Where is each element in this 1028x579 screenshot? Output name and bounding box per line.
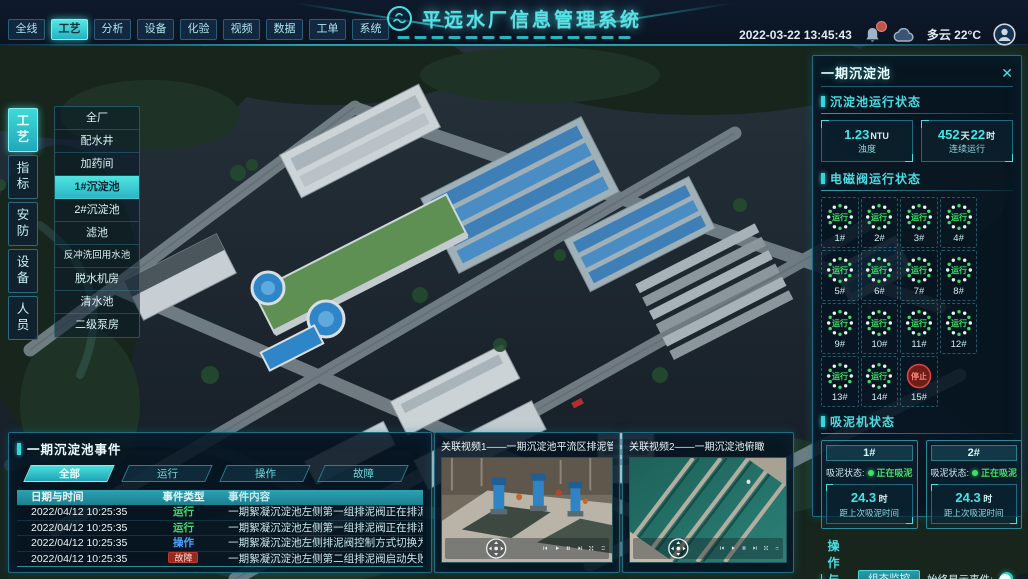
valve-cell-2#: 运行2# [861, 197, 899, 248]
svg-text:运行: 运行 [911, 318, 927, 328]
left-category-tab-1[interactable]: 指标 [8, 155, 38, 199]
valve-number-label: 5# [835, 286, 846, 297]
valve-cell-9#: 运行9# [821, 303, 859, 354]
events-table-header: 日期与时间 事件类型 事件内容 [17, 490, 423, 505]
events-panel-title: 一期沉淀池事件 [17, 439, 423, 458]
top-nav-tab-6[interactable]: 数据 [266, 19, 303, 40]
svg-text:运行: 运行 [871, 265, 887, 275]
video-panel-2: 关联视频2——一期沉淀池俯瞰 [622, 432, 794, 573]
stat-value-0: 1.23NTU [844, 128, 890, 141]
events-table: 日期与时间 事件类型 事件内容 2022/04/12 10:25:35运行一期絮… [17, 490, 423, 567]
ptz-dpad-icon[interactable] [637, 538, 720, 559]
top-nav-tabs: 全线工艺分析设备化验视频数据工单系统 [8, 19, 389, 40]
event-datetime: 2022/04/12 10:25:35 [17, 505, 139, 520]
svg-text:运行: 运行 [832, 265, 848, 275]
valve-running-gauge-icon: 运行 [825, 255, 855, 285]
svg-text:运行: 运行 [951, 318, 967, 328]
mud-machine-card-0: 1#吸泥状态:正在吸泥24.3 时距上次吸泥时间 [821, 440, 918, 529]
header-dash-strip [398, 36, 631, 39]
sedimentation-detail-panel: 一期沉淀池 ✕ 沉淀池运行状态 1.23NTU浊度452天22时连续运行 电磁阀… [812, 55, 1022, 517]
svg-text:运行: 运行 [951, 212, 967, 222]
toggle-knob [999, 574, 1011, 579]
valve-cell-6#: 运行6# [861, 250, 899, 301]
valve-cell-7#: 运行7# [900, 250, 938, 301]
mud-value: 24.3 时 [829, 490, 910, 505]
operations-row: 操作与设置 组态监控 始终显示事件: [821, 537, 1013, 579]
valve-cell-14#: 运行14# [861, 356, 899, 407]
valve-cell-3#: 运行3# [900, 197, 938, 248]
app-logo-icon [386, 5, 413, 32]
video-2-title: 关联视频2——一期沉淀池俯瞰 [629, 438, 787, 453]
stat-value-1: 452天22时 [938, 128, 996, 141]
valve-cell-13#: 运行13# [821, 356, 859, 407]
left-category-tab-3[interactable]: 设备 [8, 249, 38, 293]
svg-text:运行: 运行 [871, 212, 887, 222]
event-content: 一期絮凝沉淀池左侧第二组排泥阀启动失败 [228, 552, 423, 567]
left-category-tab-4[interactable]: 人员 [8, 296, 38, 340]
valve-number-label: 4# [953, 233, 964, 244]
pause-icon[interactable] [742, 546, 746, 550]
event-content: 一期絮凝沉淀池左侧排泥阀控制方式切换为手动 [228, 536, 423, 551]
event-row-3[interactable]: 2022/04/12 10:25:35故障一期絮凝沉淀池左侧第二组排泥阀启动失败 [17, 552, 423, 568]
svg-text:运行: 运行 [832, 371, 848, 381]
mud-machine-card-1: 2#吸泥状态:正在吸泥24.3 时距上次吸泥时间 [926, 440, 1023, 529]
scada-monitor-button[interactable]: 组态监控 [858, 570, 920, 579]
weather-cloud-icon [893, 28, 915, 42]
mud-value-box: 24.3 时距上次吸泥时间 [826, 484, 913, 524]
svg-text:运行: 运行 [911, 265, 927, 275]
valve-cell-10#: 运行10# [861, 303, 899, 354]
col-header-content: 事件内容 [228, 490, 423, 505]
top-nav-tab-0[interactable]: 全线 [8, 19, 45, 40]
col-header-type: 事件类型 [139, 490, 228, 505]
top-nav-tab-4[interactable]: 化验 [180, 19, 217, 40]
header-right-info: 2022-03-22 13:45:43 多云 22°C [739, 23, 1016, 46]
top-nav-tab-2[interactable]: 分析 [94, 19, 131, 40]
close-icon[interactable]: ✕ [1001, 66, 1013, 80]
ptz-dpad-icon[interactable] [449, 538, 543, 559]
mud-value-box: 24.3 时距上次吸泥时间 [931, 484, 1018, 524]
valve-number-label: 7# [914, 286, 925, 297]
event-type: 故障 [139, 552, 228, 567]
top-nav-tab-8[interactable]: 系统 [352, 19, 389, 40]
event-datetime: 2022/04/12 10:25:35 [17, 521, 139, 536]
event-type: 运行 [139, 505, 228, 520]
events-filter-tab-3[interactable]: 故障 [317, 465, 409, 482]
event-content: 一期絮凝沉淀池左侧第一组排泥阀正在排泥 [228, 521, 423, 536]
top-header: 全线工艺分析设备化验视频数据工单系统 平远水厂信息管理系统 2022-03-22… [0, 0, 1028, 45]
svg-text:停止: 停止 [911, 371, 927, 381]
valve-number-label: 10# [871, 339, 887, 350]
mud-machine-id: 2# [931, 445, 1018, 461]
event-type: 运行 [139, 521, 228, 536]
valve-running-gauge-icon: 运行 [944, 202, 974, 232]
section-title-status: 沉淀池运行状态 [821, 93, 1013, 110]
valve-cell-12#: 运行12# [940, 303, 978, 354]
top-nav-tab-1[interactable]: 工艺 [51, 19, 88, 40]
submenu-item-2[interactable]: 加药间 [55, 153, 139, 176]
left-category-tab-0[interactable]: 工艺 [8, 108, 38, 152]
submenu-item-7[interactable]: 脱水机房 [55, 268, 139, 291]
event-datetime: 2022/04/12 10:25:35 [17, 536, 139, 551]
valve-number-label: 3# [914, 233, 925, 244]
valve-number-label: 15# [911, 392, 927, 403]
valve-running-gauge-icon: 运行 [825, 308, 855, 338]
skip-forward-icon[interactable] [578, 546, 582, 550]
valve-running-gauge-icon: 运行 [944, 255, 974, 285]
event-row-1[interactable]: 2022/04/12 10:25:35运行一期絮凝沉淀池左侧第一组排泥阀正在排泥 [17, 521, 423, 537]
skip-back-icon[interactable] [720, 546, 724, 550]
mud-machine-cards: 1#吸泥状态:正在吸泥24.3 时距上次吸泥时间2#吸泥状态:正在吸泥24.3 … [821, 440, 1013, 529]
top-nav-tab-5[interactable]: 视频 [223, 19, 260, 40]
mud-value-label: 距上次吸泥时间 [829, 507, 910, 519]
fullscreen-icon[interactable] [589, 546, 593, 550]
submenu-item-0[interactable]: 全厂 [55, 107, 139, 130]
status-dot-icon [868, 470, 874, 476]
valve-running-gauge-icon: 运行 [825, 361, 855, 391]
submenu-item-1[interactable]: 配水井 [55, 130, 139, 153]
submenu-item-5[interactable]: 滤池 [55, 222, 139, 245]
play-icon[interactable] [731, 546, 735, 550]
valve-status-grid: 运行1#运行2#运行3#运行4#运行5#运行6#运行7#运行8#运行9#运行10… [821, 197, 1013, 407]
app-screen: 全线工艺分析设备化验视频数据工单系统 平远水厂信息管理系统 2022-03-22… [0, 0, 1028, 579]
valve-running-gauge-icon: 运行 [864, 202, 894, 232]
svg-text:运行: 运行 [871, 371, 887, 381]
section-rule [821, 190, 1013, 191]
left-category-tab-2[interactable]: 安防 [8, 202, 38, 246]
svg-text:运行: 运行 [871, 318, 887, 328]
mud-machine-status: 吸泥状态:正在吸泥 [931, 466, 1018, 479]
event-type: 操作 [139, 536, 228, 551]
valve-number-label: 9# [835, 339, 846, 350]
stat-label-0: 浊度 [858, 142, 876, 155]
events-filter-tab-2[interactable]: 操作 [219, 465, 311, 482]
valve-cell-11#: 运行11# [900, 303, 938, 354]
col-header-datetime: 日期与时间 [17, 490, 139, 505]
valve-running-gauge-icon: 运行 [864, 361, 894, 391]
status-stat-cards: 1.23NTU浊度452天22时连续运行 [821, 120, 1013, 162]
fullscreen-icon[interactable] [764, 546, 768, 550]
valve-number-label: 8# [953, 286, 964, 297]
svg-text:运行: 运行 [832, 318, 848, 328]
pause-icon[interactable] [566, 546, 570, 550]
valve-running-gauge-icon: 运行 [904, 255, 934, 285]
valve-running-gauge-icon: 运行 [904, 202, 934, 232]
svg-text:运行: 运行 [911, 212, 927, 222]
valve-running-gauge-icon: 运行 [944, 308, 974, 338]
valve-number-label: 6# [874, 286, 885, 297]
mud-machine-status: 吸泥状态:正在吸泥 [826, 466, 913, 479]
app-title-block: 平远水厂信息管理系统 [386, 5, 642, 32]
user-avatar-icon[interactable] [993, 23, 1016, 46]
stat-card-0: 1.23NTU浊度 [821, 120, 913, 162]
event-type-badge: 故障 [168, 552, 198, 563]
valve-running-gauge-icon: 运行 [864, 308, 894, 338]
valve-running-gauge-icon: 运行 [904, 308, 934, 338]
video-1-controls [445, 538, 609, 559]
events-panel: 一期沉淀池事件 全部运行操作故障 日期与时间 事件类型 事件内容 2022/04… [8, 432, 432, 573]
always-show-events-label: 始终显示事件: [927, 572, 993, 579]
valve-running-gauge-icon: 运行 [825, 202, 855, 232]
section-title-ops: 操作与设置 [821, 537, 851, 579]
loop-icon[interactable] [775, 547, 779, 551]
events-filter-tab-0[interactable]: 全部 [23, 465, 115, 482]
notification-badge [876, 21, 887, 32]
submenu-item-8[interactable]: 清水池 [55, 291, 139, 314]
stat-card-1: 452天22时连续运行 [921, 120, 1013, 162]
weather-text: 多云 22°C [927, 26, 981, 43]
valve-cell-4#: 运行4# [940, 197, 978, 248]
stat-label-1: 连续运行 [949, 142, 985, 155]
section-rule [821, 433, 1013, 434]
status-dot-icon [972, 470, 978, 476]
valve-number-label: 13# [832, 392, 848, 403]
valve-cell-8#: 运行8# [940, 250, 978, 301]
video-2-controls [633, 538, 783, 559]
event-row-0[interactable]: 2022/04/12 10:25:35运行一期絮凝沉淀池左侧第一组排泥阀正在排泥 [17, 505, 423, 521]
valve-cell-15#: 停止15# [900, 356, 938, 407]
process-submenu: 全厂配水井加药间1#沉淀池2#沉淀池滤池反冲洗回用水池脱水机房清水池二级泵房 [54, 106, 140, 338]
valve-cell-5#: 运行5# [821, 250, 859, 301]
datetime-text: 2022-03-22 13:45:43 [739, 28, 852, 42]
events-table-body: 2022/04/12 10:25:35运行一期絮凝沉淀池左侧第一组排泥阀正在排泥… [17, 505, 423, 567]
mud-machine-id: 1# [826, 445, 913, 461]
skip-back-icon[interactable] [543, 546, 547, 550]
mud-value: 24.3 时 [934, 490, 1015, 505]
section-title-mud: 吸泥机状态 [821, 413, 1013, 430]
submenu-item-3[interactable]: 1#沉淀池 [55, 176, 139, 199]
page-title: 平远水厂信息管理系统 [422, 5, 642, 32]
section-title-valves: 电磁阀运行状态 [821, 170, 1013, 187]
video-2-stream[interactable] [629, 457, 787, 563]
event-content: 一期絮凝沉淀池左侧第一组排泥阀正在排泥 [228, 505, 423, 520]
valve-cell-1#: 运行1# [821, 197, 859, 248]
notification-bell-icon[interactable] [864, 26, 881, 44]
section-rule [821, 113, 1013, 114]
top-nav-tab-7[interactable]: 工单 [309, 19, 346, 40]
left-category-tabs: 工艺指标安防设备人员 [8, 108, 38, 340]
event-datetime: 2022/04/12 10:25:35 [17, 552, 139, 567]
event-row-2[interactable]: 2022/04/12 10:25:35操作一期絮凝沉淀池左侧排泥阀控制方式切换为… [17, 536, 423, 552]
always-show-events-toggle[interactable] [1000, 572, 1013, 579]
valve-number-label: 12# [951, 339, 967, 350]
valve-number-label: 1# [835, 233, 846, 244]
mud-value-label: 距上次吸泥时间 [934, 507, 1015, 519]
events-filter-tab-1[interactable]: 运行 [121, 465, 213, 482]
svg-text:运行: 运行 [832, 212, 848, 222]
submenu-item-4[interactable]: 2#沉淀池 [55, 199, 139, 222]
valve-number-label: 14# [871, 392, 887, 403]
skip-forward-icon[interactable] [753, 546, 757, 550]
svg-text:运行: 运行 [951, 265, 967, 275]
valve-stopped-gauge-icon: 停止 [904, 361, 934, 391]
video-1-title: 关联视频1——一期沉淀池平流区排泥管廊 [441, 438, 613, 453]
play-icon[interactable] [555, 546, 559, 550]
events-filter-tabs: 全部运行操作故障 [27, 465, 423, 482]
valve-number-label: 2# [874, 233, 885, 244]
submenu-item-9[interactable]: 二级泵房 [55, 314, 139, 337]
valve-running-gauge-icon: 运行 [864, 255, 894, 285]
top-nav-tab-3[interactable]: 设备 [137, 19, 174, 40]
valve-number-label: 11# [911, 339, 926, 350]
submenu-item-6[interactable]: 反冲洗回用水池 [55, 245, 139, 268]
video-panel-1: 关联视频1——一期沉淀池平流区排泥管廊 [434, 432, 620, 573]
video-1-stream[interactable] [441, 457, 613, 563]
loop-icon[interactable] [601, 546, 605, 550]
panel-title: 一期沉淀池 [821, 63, 891, 82]
